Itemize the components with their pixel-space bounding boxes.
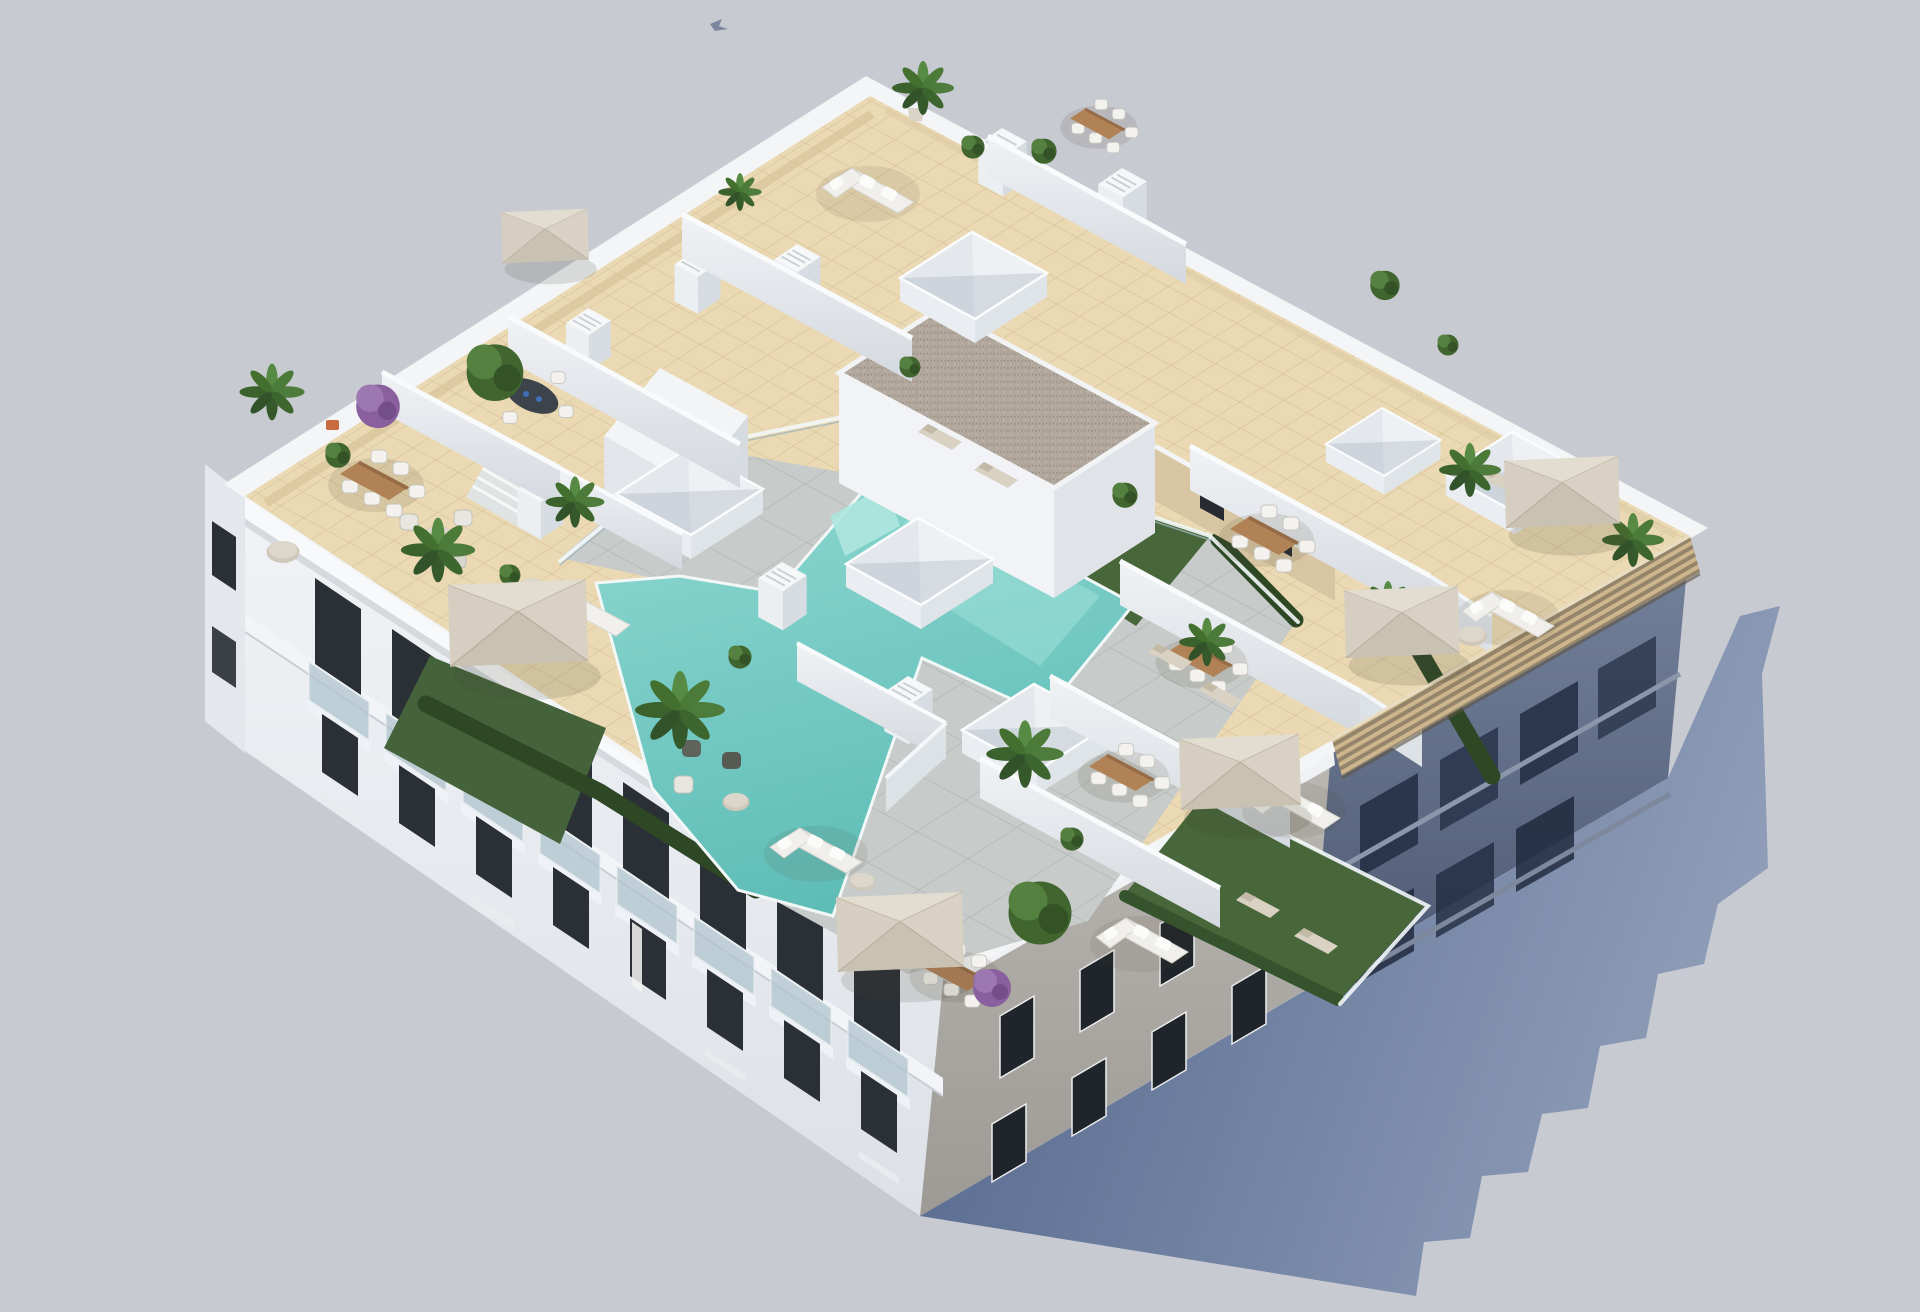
parasol [448, 579, 601, 700]
rooftop-render-svg: Aerial 3D architectural render of an apa… [40, 16, 1920, 1296]
parasol [1504, 456, 1630, 556]
green-bush [1112, 483, 1137, 508]
orange-chair [326, 420, 339, 430]
green-bush [1438, 335, 1459, 356]
green-bush [467, 344, 524, 401]
facade-northwest-return [205, 464, 245, 753]
render-image: Aerial 3D architectural render of an apa… [40, 16, 1920, 1296]
bougainvillea [973, 969, 1011, 1007]
green-bush [325, 443, 350, 468]
lounge-sofa [764, 826, 868, 882]
bougainvillea [356, 384, 400, 428]
green-bush [1060, 828, 1083, 851]
green-bush [1370, 271, 1399, 300]
side-table [849, 873, 876, 891]
lounge-sofa [1090, 916, 1194, 972]
green-bush [961, 136, 984, 159]
green-bush [900, 357, 921, 378]
parasol [1344, 586, 1470, 686]
parasol [501, 209, 597, 285]
green-bush [1009, 882, 1072, 945]
lounge-sofa [816, 166, 920, 222]
parasol [836, 892, 976, 1002]
green-bush [1031, 139, 1056, 164]
side-table [267, 541, 300, 563]
side-table [1457, 626, 1487, 646]
green-bush [728, 646, 751, 669]
parasol [1179, 734, 1312, 839]
